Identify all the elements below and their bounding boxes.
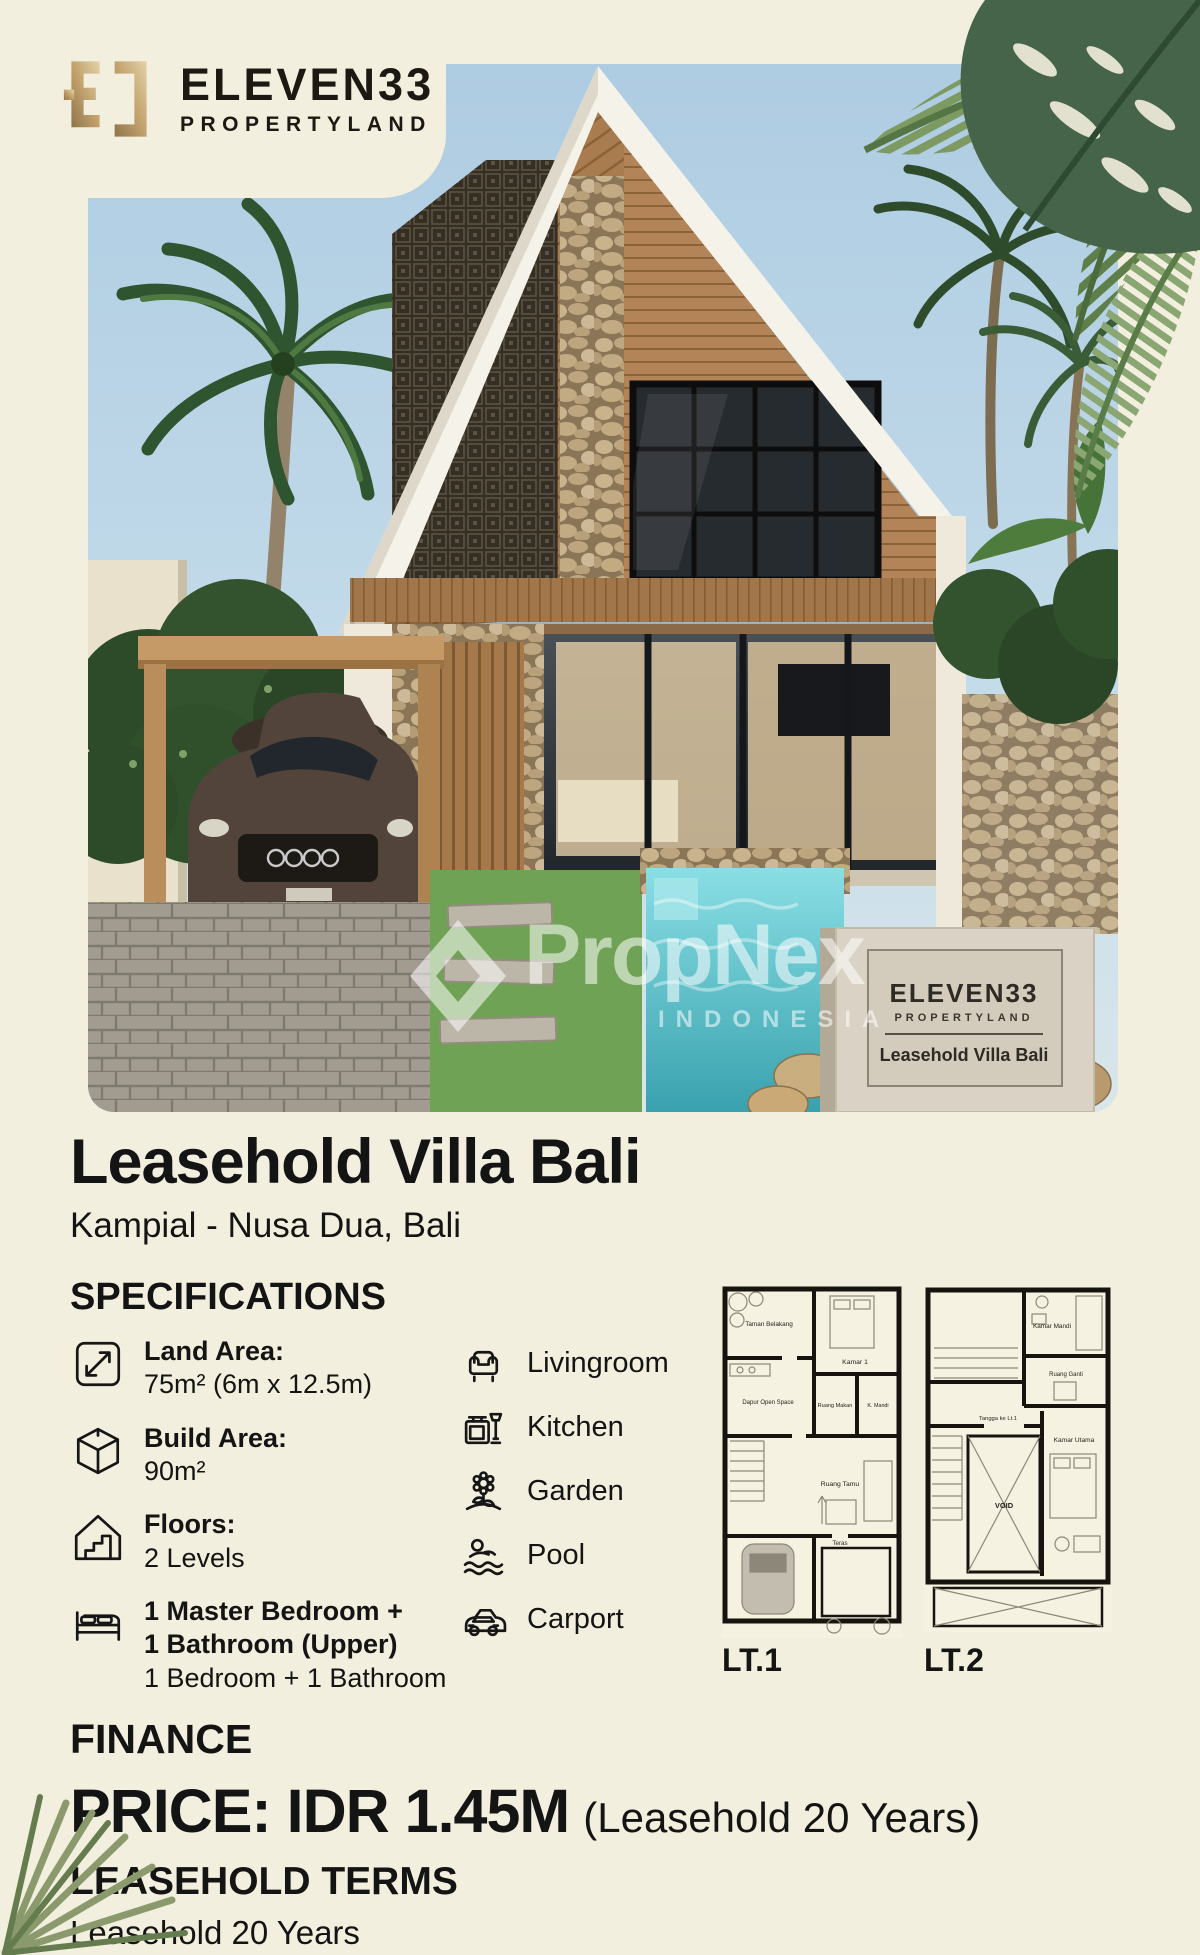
leasehold-terms-value: Leasehold 20 Years [70, 1914, 360, 1952]
amenity-carport: Carport [460, 1596, 669, 1643]
price-line: PRICE: IDR 1.45M(Leasehold 20 Years) [70, 1776, 980, 1846]
plan2-room-void: VOID [995, 1501, 1014, 1510]
eleven33-logo-icon [62, 50, 156, 148]
logo-tab: ELEVEN33 PROPERTYLAND [0, 0, 446, 198]
finance-heading: FINANCE [70, 1716, 252, 1763]
leasehold-terms-heading: LEASEHOLD TERMS [70, 1860, 458, 1904]
amenity-kitchen: Kitchen [460, 1404, 669, 1451]
floorplan-lt1: Taman Belakang Kamar 1 Dapur Open Space … [722, 1286, 902, 1638]
floors-icon [70, 1509, 126, 1565]
price-note: (Leasehold 20 Years) [583, 1794, 980, 1841]
flyer-page: PropNex INDONESIA ELEVEN33 PROPERTYLAND … [0, 0, 1200, 1955]
spec-label: Build Area: [144, 1423, 287, 1454]
spec-value: 1 Bathroom (Upper) [144, 1629, 446, 1660]
brand-name: ELEVEN33 [180, 62, 434, 107]
page-location: Kampial - Nusa Dua, Bali [70, 1206, 461, 1246]
floorplan-lt2: Kamar Mandi Ruang Ganti Tangga ke Lt.1 K… [924, 1286, 1112, 1632]
price-value: PRICE: IDR 1.45M [70, 1777, 569, 1845]
plan2-room-wardrobe: Ruang Ganti [1049, 1372, 1083, 1378]
spec-label: 1 Master Bedroom + [144, 1596, 446, 1627]
spec-row-land-area: Land Area: 75m² (6m x 12.5m) [70, 1336, 462, 1401]
pergola-beam-shade [138, 660, 444, 669]
land-area-icon [70, 1336, 126, 1392]
plan1-room-bedroom: Kamar 1 [842, 1359, 868, 1366]
garden-icon [460, 1468, 507, 1515]
plan1-room-garden: Taman Belakang [745, 1321, 793, 1328]
amenity-label: Carport [527, 1603, 624, 1636]
sofa-silhouette [558, 780, 678, 842]
spec-details-list: Land Area: 75m² (6m x 12.5m) Build Area:… [70, 1336, 462, 1694]
amenity-livingroom: Livingroom [460, 1340, 669, 1387]
pool-icon [460, 1532, 507, 1579]
floorplan-lt2-label: LT.2 [924, 1642, 984, 1679]
plan1-room-dining: Ruang Makan [818, 1403, 853, 1409]
plan1-room-terrace: Teras [832, 1540, 847, 1547]
spec-value: 75m² (6m x 12.5m) [144, 1369, 372, 1400]
tv-screen [778, 664, 890, 736]
build-area-icon [70, 1423, 126, 1479]
paver-driveway [88, 902, 432, 1112]
floorplan-lt1-label: LT.1 [722, 1642, 782, 1679]
plan2-room-stairs: Tangga ke Lt.1 [979, 1416, 1017, 1422]
specifications-heading: SPECIFICATIONS [70, 1276, 386, 1319]
pergola-beam [138, 636, 444, 660]
spec-label: Land Area: [144, 1336, 372, 1367]
plan1-room-kitchen: Dapur Open Space [742, 1400, 794, 1406]
page-title: Leasehold Villa Bali [70, 1126, 641, 1198]
sign-divider [885, 1033, 1043, 1035]
stone-wall-right [962, 694, 1118, 934]
spec-value-extra: 1 Bedroom + 1 Bathroom [144, 1663, 446, 1694]
livingroom-icon [460, 1340, 507, 1387]
amenity-pool: Pool [460, 1532, 669, 1579]
spec-value: 90m² [144, 1456, 287, 1487]
plan2-room-bath: Kamar Mandi [1033, 1323, 1071, 1330]
sign-text: ELEVEN33 PROPERTYLAND Leasehold Villa Ba… [836, 932, 1092, 1112]
plan1-room-living: Ruang Tamu [821, 1481, 860, 1488]
amenity-label: Pool [527, 1539, 585, 1572]
plan2-room-master: Kamar Utama [1054, 1437, 1095, 1444]
amenity-label: Livingroom [527, 1347, 669, 1380]
amenities-list: Livingroom Kitchen Garden [460, 1340, 669, 1643]
amenity-label: Kitchen [527, 1411, 624, 1444]
kitchen-icon [460, 1404, 507, 1451]
amenity-garden: Garden [460, 1468, 669, 1515]
plan1-room-bath: K. Mandi [867, 1403, 888, 1409]
spec-row-floors: Floors: 2 Levels [70, 1509, 462, 1574]
spec-value: 2 Levels [144, 1543, 245, 1574]
stone-column [560, 176, 624, 590]
wood-beam [350, 578, 954, 622]
sign-label: Leasehold Villa Bali [880, 1045, 1049, 1066]
spec-row-build-area: Build Area: 90m² [70, 1423, 462, 1488]
spec-row-bedrooms: 1 Master Bedroom + 1 Bathroom (Upper) 1 … [70, 1596, 462, 1694]
sign-brand: ELEVEN33 [890, 978, 1039, 1009]
villa-photo: PropNex INDONESIA ELEVEN33 PROPERTYLAND … [88, 64, 1118, 1112]
spec-label: Floors: [144, 1509, 245, 1540]
brand-tagline: PROPERTYLAND [180, 113, 434, 137]
bedroom-icon [70, 1596, 126, 1652]
carport-icon [460, 1596, 507, 1643]
stepping-stones [440, 902, 557, 1043]
amenity-label: Garden [527, 1475, 624, 1508]
sign-tagline: PROPERTYLAND [894, 1012, 1033, 1024]
glass-doors [544, 624, 950, 874]
